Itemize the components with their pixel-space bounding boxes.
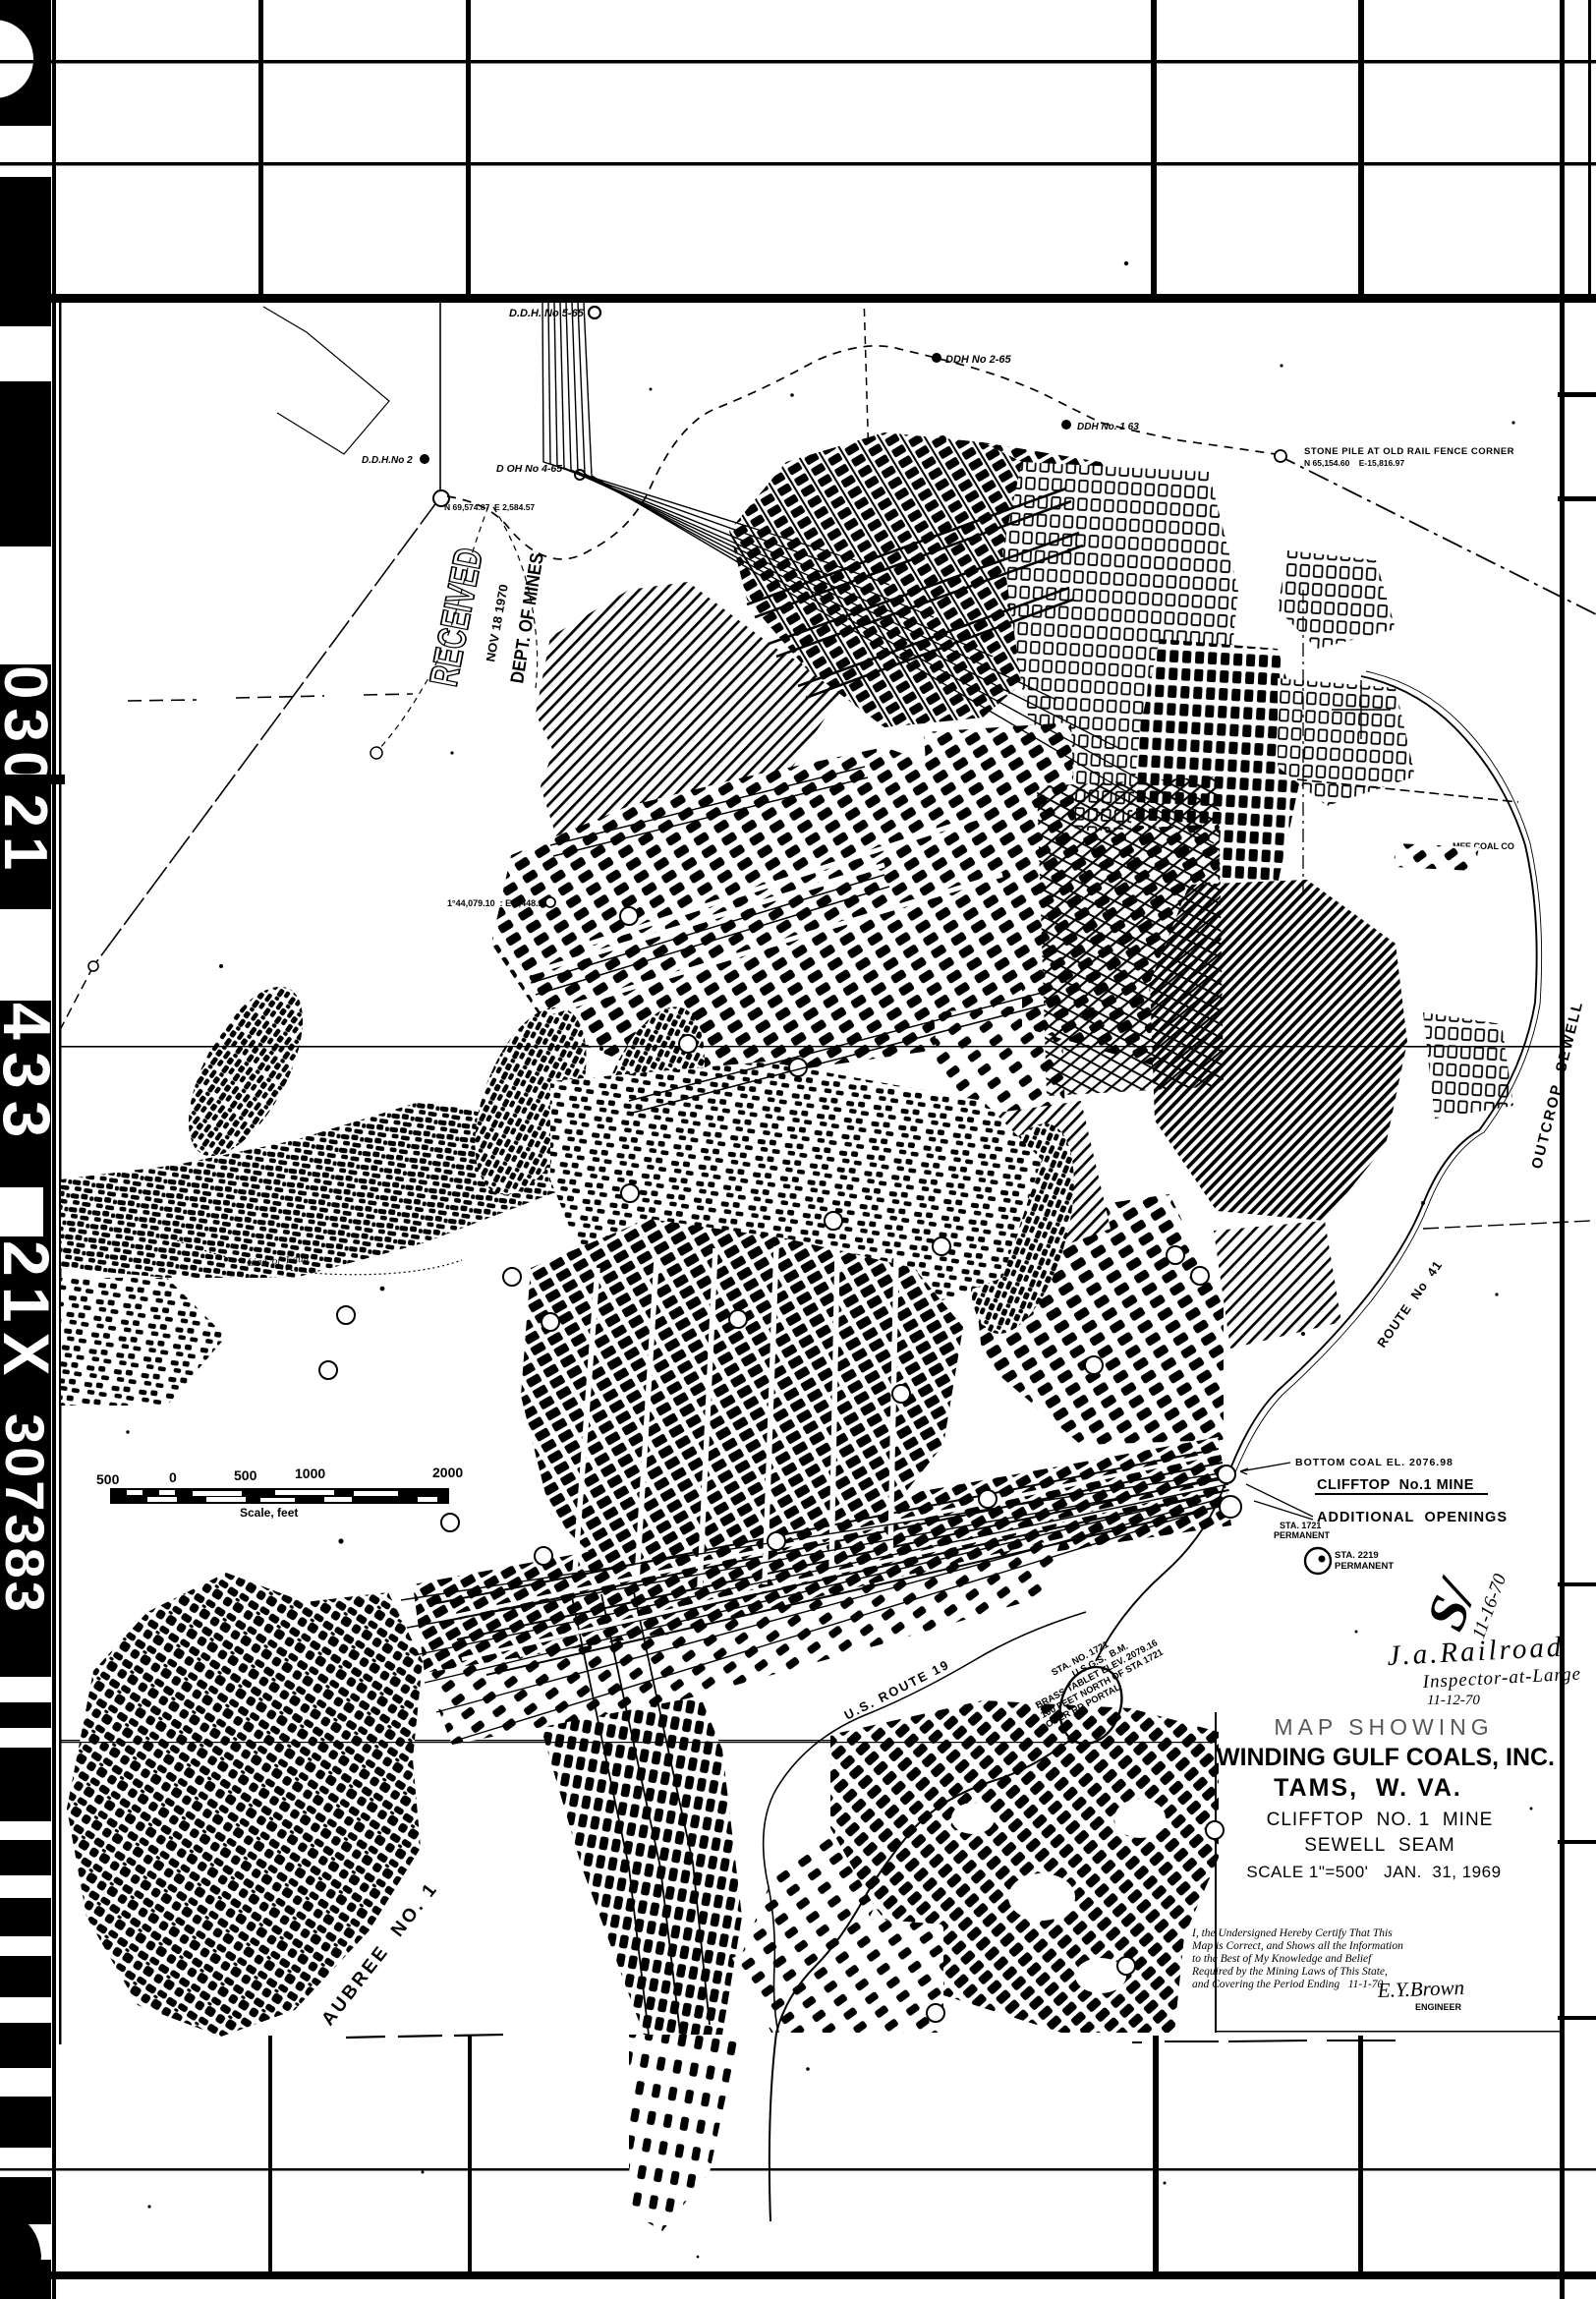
svg-text:D.D.H.No 2: D.D.H.No 2	[362, 455, 413, 466]
svg-text:STA. 1721: STA. 1721	[1280, 1521, 1321, 1530]
svg-text:WINDING GULF COALS, INC.: WINDING GULF COALS, INC.	[1217, 1744, 1555, 1771]
svg-text:500: 500	[96, 1471, 120, 1487]
svg-text:E.Y.Brown: E.Y.Brown	[1376, 1976, 1464, 2002]
svg-text:1000: 1000	[295, 1466, 325, 1481]
svg-text:and Covering the Period Ending: and Covering the Period Ending 11-1-70	[1192, 1979, 1384, 1990]
svg-text:1°44,079.10 : E 9,448.26: 1°44,079.10 : E 9,448.26	[447, 898, 548, 908]
svg-text:CLIFFTOP NO. 1 MINE: CLIFFTOP NO. 1 MINE	[1267, 1810, 1494, 1830]
svg-text:TAMS, W. VA.: TAMS, W. VA.	[1274, 1774, 1462, 1802]
svg-text:Required by the Mining Laws of: Required by the Mining Laws of This Stat…	[1191, 1966, 1388, 1978]
svg-text:500: 500	[234, 1467, 257, 1483]
svg-text:DDH No. 1 63: DDH No. 1 63	[1077, 422, 1139, 432]
svg-text:0: 0	[169, 1469, 177, 1485]
svg-text:PERMANENT: PERMANENT	[1274, 1530, 1331, 1540]
svg-text:Map is Correct, and Shows all: Map is Correct, and Shows all the Inform…	[1191, 1940, 1403, 1952]
svg-text:MAP SHOWING: MAP SHOWING	[1274, 1714, 1493, 1740]
svg-text:STONE PILE AT OLD RAIL FENCE C: STONE PILE AT OLD RAIL FENCE CORNER	[1304, 446, 1514, 457]
svg-text:ENGINEER: ENGINEER	[1415, 2002, 1462, 2012]
svg-text:PERMANENT: PERMANENT	[1335, 1561, 1394, 1572]
svg-text:STA. 2219: STA. 2219	[1335, 1550, 1379, 1561]
svg-text:DDH No 2-65: DDH No 2-65	[945, 354, 1012, 366]
svg-text:SCALE 1"=500' JAN. 31, 1969: SCALE 1"=500' JAN. 31, 1969	[1246, 1863, 1501, 1881]
svg-text:307383: 307383	[0, 1413, 56, 1615]
svg-text:N 65,154.60 E-15,816.97: N 65,154.60 E-15,816.97	[1304, 458, 1404, 468]
svg-text:to the Best of My Knowledge an: to the Best of My Knowledge and Belief	[1192, 1953, 1373, 1965]
svg-text:I, the Undersigned Hereby Cert: I, the Undersigned Hereby Certify That T…	[1191, 1927, 1393, 1939]
svg-text:03021: 03021	[0, 665, 59, 879]
svg-text:Scale, feet: Scale, feet	[240, 1506, 298, 1520]
svg-text:BOTTOM COAL EL. 2076.98: BOTTOM COAL EL. 2076.98	[1295, 1457, 1453, 1468]
svg-text:N 69,574.87 E 2,584.57: N 69,574.87 E 2,584.57	[444, 502, 535, 512]
svg-text:11-12-70: 11-12-70	[1427, 1693, 1480, 1708]
svg-text:2000: 2000	[432, 1465, 463, 1480]
svg-text:ADDITIONAL OPENINGS: ADDITIONAL OPENINGS	[1317, 1510, 1508, 1525]
svg-text:SEWELL SEAM: SEWELL SEAM	[1304, 1835, 1455, 1856]
svg-text:CLIFFTOP No.1 MINE: CLIFFTOP No.1 MINE	[1317, 1477, 1474, 1493]
